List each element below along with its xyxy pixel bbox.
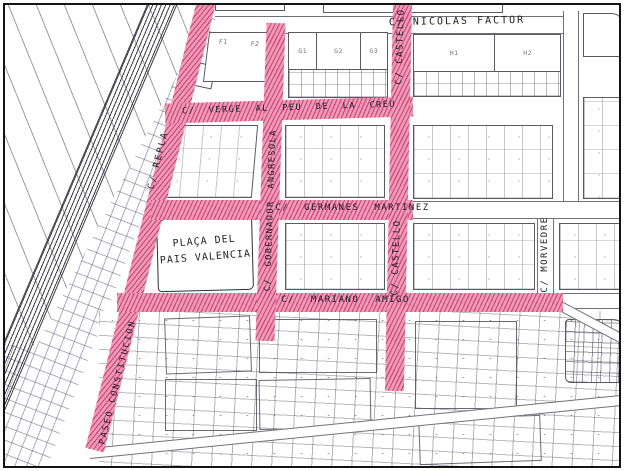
top-sliver-block bbox=[323, 3, 503, 13]
city-block-outline bbox=[165, 379, 257, 431]
block-row2-mid bbox=[285, 125, 385, 198]
map-frame: F1 F2 G1 G2 G3 H1 H2 bbox=[3, 3, 621, 468]
block-right-upper bbox=[583, 97, 621, 199]
block-row3-mid bbox=[285, 223, 385, 290]
plaza-pais-valencia: PLAÇA DEL PAIS VALENCIA bbox=[156, 216, 254, 292]
block-row2-right bbox=[413, 125, 553, 199]
block-f1-label: F1 bbox=[218, 39, 228, 46]
block-top-right bbox=[583, 13, 621, 57]
block-g1-label: G1 bbox=[298, 48, 307, 55]
block-row3-far-right bbox=[559, 223, 621, 290]
street-label-germanes-martinez: C/ GERMANES MARTINEZ bbox=[255, 204, 450, 213]
street-label-morvedre: C/ MORVEDRE bbox=[541, 207, 550, 302]
block-h: H1 H2 bbox=[413, 34, 561, 97]
block-g3-label: G3 bbox=[369, 48, 378, 55]
map-canvas: F1 F2 G1 G2 G3 H1 H2 bbox=[0, 0, 624, 471]
city-block-outline bbox=[164, 316, 252, 375]
city-block-outline bbox=[415, 321, 517, 409]
block-row3-right bbox=[413, 223, 535, 290]
block-g: G1 G2 G3 bbox=[288, 32, 388, 98]
top-sliver-block bbox=[215, 3, 285, 11]
block-h2-label: H2 bbox=[523, 50, 532, 57]
street-top-right bbox=[563, 11, 579, 201]
street-label-mariano-amigo: C/ MARIANO AMIGO bbox=[243, 296, 448, 305]
plaza-label: PLAÇA DEL PAIS VALENCIA bbox=[157, 230, 253, 269]
block-h1-label: H1 bbox=[450, 50, 459, 57]
block-f2-label: F2 bbox=[250, 41, 260, 48]
city-block-outline bbox=[259, 319, 377, 373]
block-g2-label: G2 bbox=[334, 48, 343, 55]
